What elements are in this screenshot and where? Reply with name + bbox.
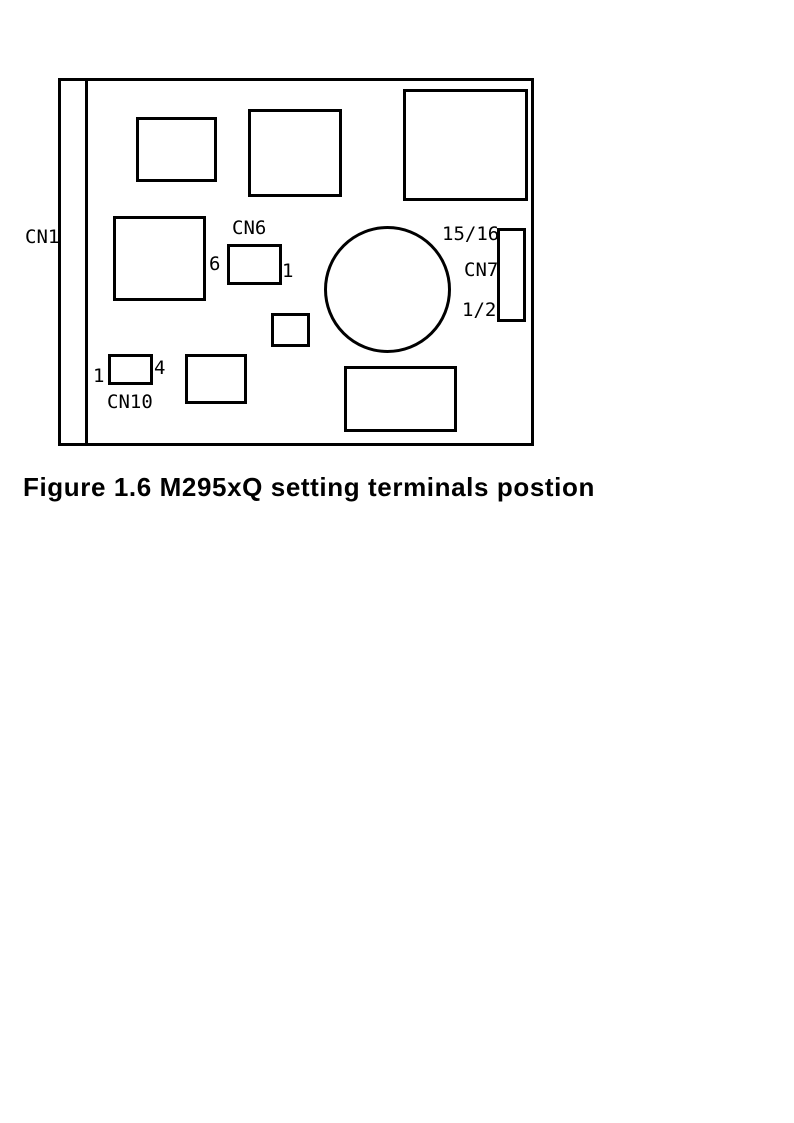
cn6-connector-rect xyxy=(227,244,282,285)
cn7-connector-rect xyxy=(497,228,526,322)
component-rect-top-middle xyxy=(248,109,342,197)
cn10-label: CN10 xyxy=(107,393,153,412)
cn7-pin-bottom-label: 1/2 xyxy=(462,301,496,320)
manual-page: CN1 CN6 6 1 15/16 CN7 1/2 1 4 CN10 Figur… xyxy=(0,0,794,1123)
cn1-label: CN1 xyxy=(25,228,59,247)
cn7-label: CN7 xyxy=(464,261,498,280)
board-layout-diagram: CN1 CN6 6 1 15/16 CN7 1/2 1 4 CN10 xyxy=(0,0,794,520)
component-rect-bottom-right xyxy=(344,366,457,432)
component-rect-left-large xyxy=(113,216,206,301)
cn10-pin-1-label: 1 xyxy=(93,367,104,386)
cn10-pin-4-label: 4 xyxy=(154,359,165,378)
cn10-connector-rect xyxy=(108,354,153,385)
cn7-pin-top-label: 15/16 xyxy=(442,225,499,244)
figure-caption: Figure 1.6 M295xQ setting terminals post… xyxy=(23,474,595,500)
cn6-label: CN6 xyxy=(232,219,266,238)
cn6-pin-6-label: 6 xyxy=(209,255,220,274)
cn1-edge-strip-line xyxy=(85,78,88,446)
circular-component xyxy=(324,226,451,353)
component-rect-top-left xyxy=(136,117,217,182)
component-rect-bottom-left xyxy=(185,354,247,404)
component-rect-center-small xyxy=(271,313,310,347)
cn6-pin-1-label: 1 xyxy=(282,262,293,281)
component-rect-top-right xyxy=(403,89,528,201)
